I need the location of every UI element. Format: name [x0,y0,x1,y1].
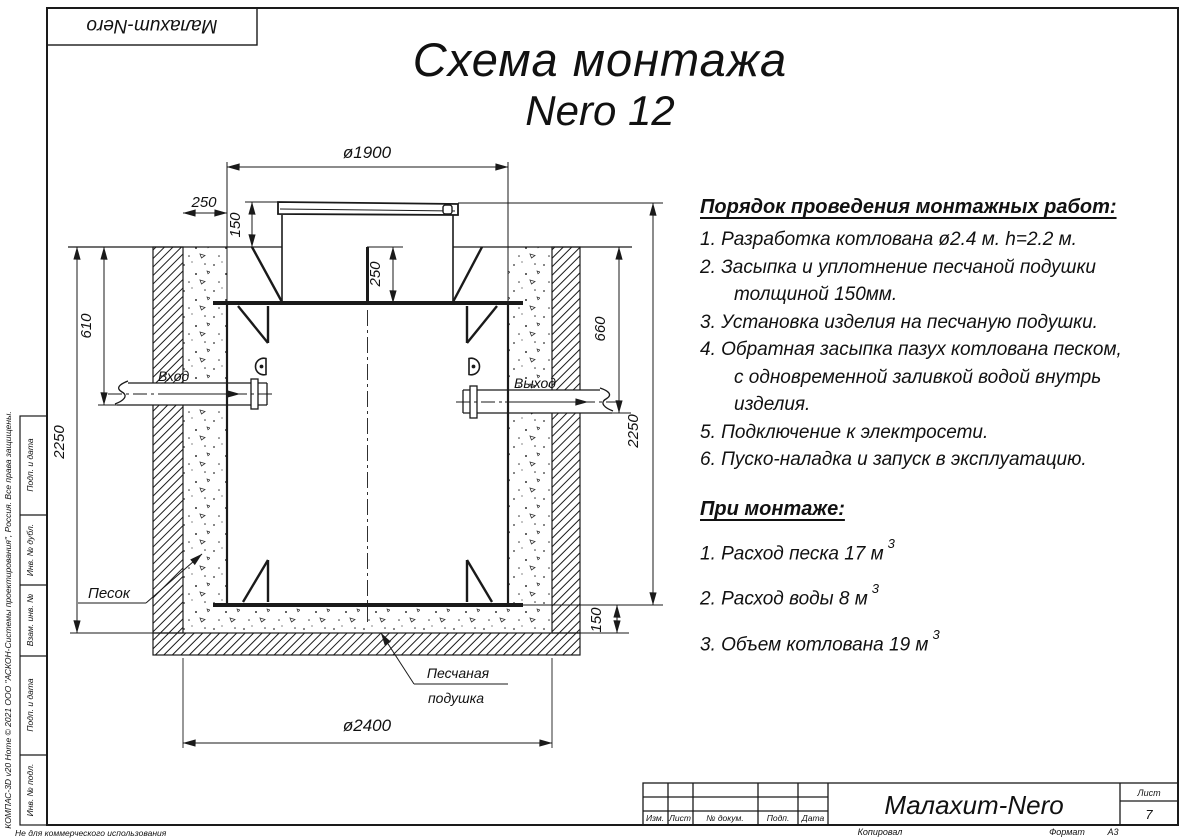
kompas-copyright: КОМПАС-3D v20 Home © 2021 ООО "АСКОН-Сис… [3,411,13,828]
procedure-block: Порядок проведения монтажных работ: 1. Р… [700,196,1145,474]
tb-col-podp: Подп. [767,813,790,823]
logo-text: Малахит-Nero [86,15,217,36]
outlet-label: Выход [514,375,556,391]
cushion-label-line1: Песчаная [427,665,490,681]
procedure-heading: Порядок проведения монтажных работ: [700,196,1117,219]
fastener-left [255,358,266,375]
montage-item-sup: 3 [932,627,939,642]
fastener-right [469,358,480,375]
procedure-line: 1. Разработка котлована ø2.4 м. h=2.2 м. [700,226,1145,254]
procedure-line: изделия. [700,391,1145,419]
page-title-line2: Nero 12 [330,86,870,136]
tb-copied-label: Копировал [858,827,903,837]
montage-block: При монтаже: 1. Расход песка 17 м3 2. Ра… [700,498,1145,664]
gusset-bottom-left [243,560,268,602]
dim-lid-height: 150 [227,212,244,238]
inlet-label: Вход [158,368,190,384]
tb-sheet-label: Лист [1136,788,1161,798]
tb-col-list: Лист [668,813,691,823]
lid-clasp [443,205,452,214]
tb-format-label: Формат [1049,827,1085,837]
side-cell-label: Взам. инв. № [25,594,35,647]
dim-tank-diameter: ø1900 [343,143,392,162]
non-commercial-note: Не для коммерческого использования [15,828,167,838]
gusset-bottom-right [467,560,492,602]
montage-item-sup: 3 [888,536,895,551]
tb-col-data: Дата [801,813,825,823]
montage-item-text: 1. Расход песка 17 м [700,543,884,564]
dim-pit-diameter: ø2400 [343,716,392,735]
montage-heading: При монтаже: [700,498,845,521]
tb-col-izm: Изм. [646,813,664,823]
side-cell-label: Подп. и дата [25,678,35,731]
tb-product-name: Малахит-Nero [884,790,1063,820]
outlet-pipe: Выход [456,375,618,418]
side-strip: Подп. и дата Инв. № дубл. Взам. инв. № П… [3,411,167,838]
gusset-top-right [453,247,482,302]
procedure-line: 3. Установка изделия на песчаную подушки… [700,309,1145,337]
tank-lid [278,202,458,215]
side-cell-label: Подп. и дата [25,438,35,491]
montage-item: 1. Расход песка 17 м3 [700,528,1145,573]
dim-side-gap: 250 [190,194,217,211]
gusset-underplate-right [467,306,497,343]
procedure-line: 2. Засыпка и уплотнение песчаной подушки [700,254,1145,282]
dim-outlet-depth: 660 [592,316,609,342]
dim-cushion-height: 150 [588,607,605,633]
procedure-line: 6. Пуско-наладка и запуск в эксплуатацию… [700,446,1145,474]
tb-format-value: А3 [1106,827,1118,837]
sand-label: Песок [88,585,131,602]
montage-item: 3. Объем котлована 19 м3 [700,619,1145,664]
dim-left-total: 2250 [51,425,68,460]
page-title-line1: Схема монтажа [330,34,870,86]
procedure-line: 5. Подключение к электросети. [700,419,1145,447]
montage-item: 2. Расход воды 8 м3 [700,573,1145,618]
page-title: Схема монтажа Nero 12 [330,34,870,136]
title-block: Изм. Лист № докум. Подп. Дата Малахит-Ne… [643,783,1178,837]
montage-item-text: 2. Расход воды 8 м [700,589,868,610]
dim-right-total: 2250 [625,414,642,449]
tb-col-docnum: № докум. [706,813,743,823]
side-cell-label: Инв. № подл. [25,764,35,817]
gusset-top-left [252,247,282,302]
side-cell-label: Инв. № дубл. [25,524,35,576]
procedure-line: 4. Обратная засыпка пазух котлована песк… [700,336,1145,364]
dim-inlet-depth: 610 [78,313,95,339]
tb-sheet-number: 7 [1145,807,1153,822]
dim-neck-height: 250 [367,261,384,288]
gusset-underplate-left [238,306,268,343]
procedure-line: толщиной 150мм. [700,281,1145,309]
montage-item-sup: 3 [872,581,879,596]
montage-item-text: 3. Объем котлована 19 м [700,634,928,655]
cushion-label-line2: подушка [428,690,484,706]
procedure-line: с одновременной заливкой водой внутрь [700,364,1145,392]
